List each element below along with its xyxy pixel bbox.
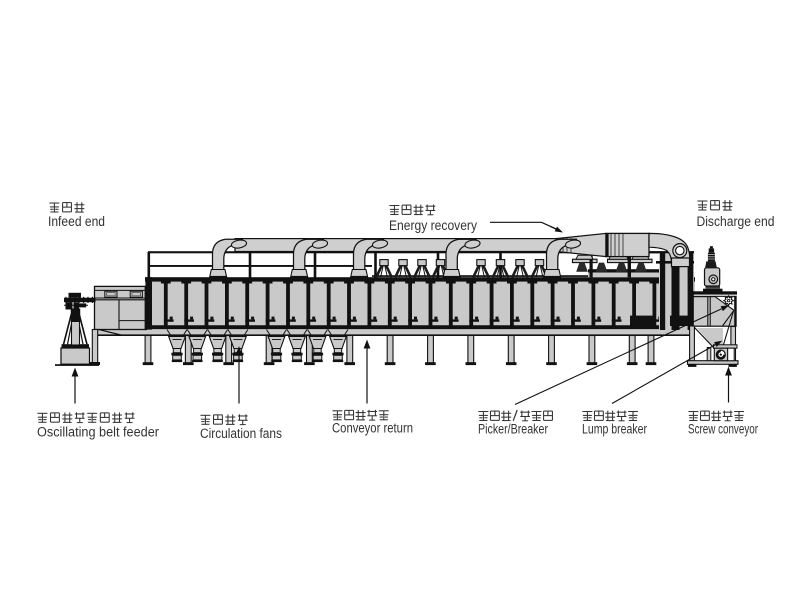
svg-text:Lump breaker: Lump breaker: [582, 422, 647, 438]
svg-text:Energy recovery: Energy recovery: [389, 218, 478, 234]
svg-text:Discharge end: Discharge end: [697, 214, 775, 230]
svg-text:Picker/Breaker: Picker/Breaker: [478, 422, 548, 438]
svg-text:Oscillating belt feeder: Oscillating belt feeder: [37, 425, 159, 441]
svg-text:Conveyor return: Conveyor return: [332, 421, 413, 437]
svg-text:Infeed end: Infeed end: [48, 214, 105, 230]
svg-text:Screw conveyor: Screw conveyor: [688, 422, 758, 438]
svg-text:Circulation fans: Circulation fans: [200, 426, 282, 442]
